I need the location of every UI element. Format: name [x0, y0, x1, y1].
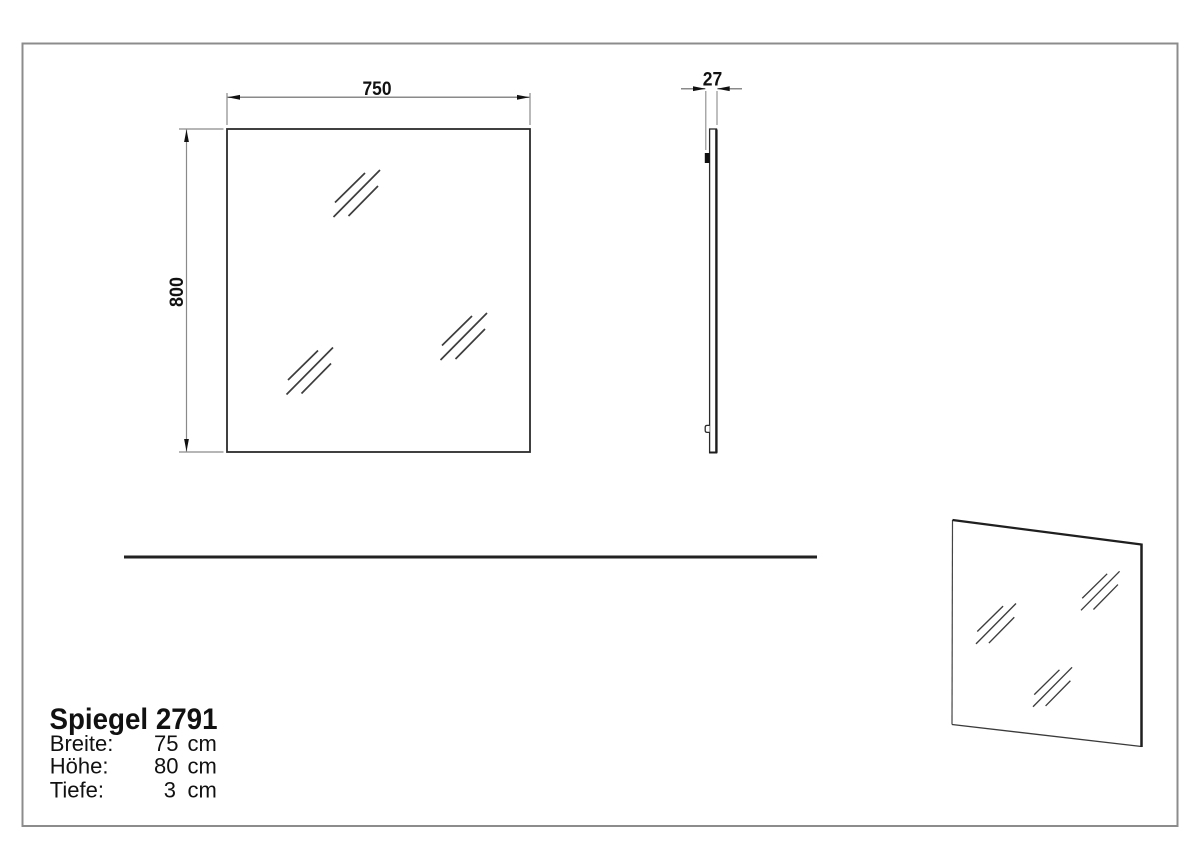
svg-text:Breite:: Breite: — [50, 731, 114, 756]
svg-text:Tiefe:: Tiefe: — [50, 778, 104, 803]
svg-text:cm: cm — [188, 731, 217, 756]
svg-text:80: 80 — [154, 754, 178, 779]
svg-text:75: 75 — [154, 731, 178, 756]
svg-text:cm: cm — [188, 778, 217, 803]
svg-text:3: 3 — [164, 778, 176, 803]
svg-text:Höhe:: Höhe: — [50, 754, 109, 779]
svg-text:750: 750 — [363, 78, 392, 100]
svg-text:cm: cm — [188, 754, 217, 779]
svg-text:27: 27 — [703, 69, 723, 91]
svg-text:800: 800 — [166, 277, 188, 307]
